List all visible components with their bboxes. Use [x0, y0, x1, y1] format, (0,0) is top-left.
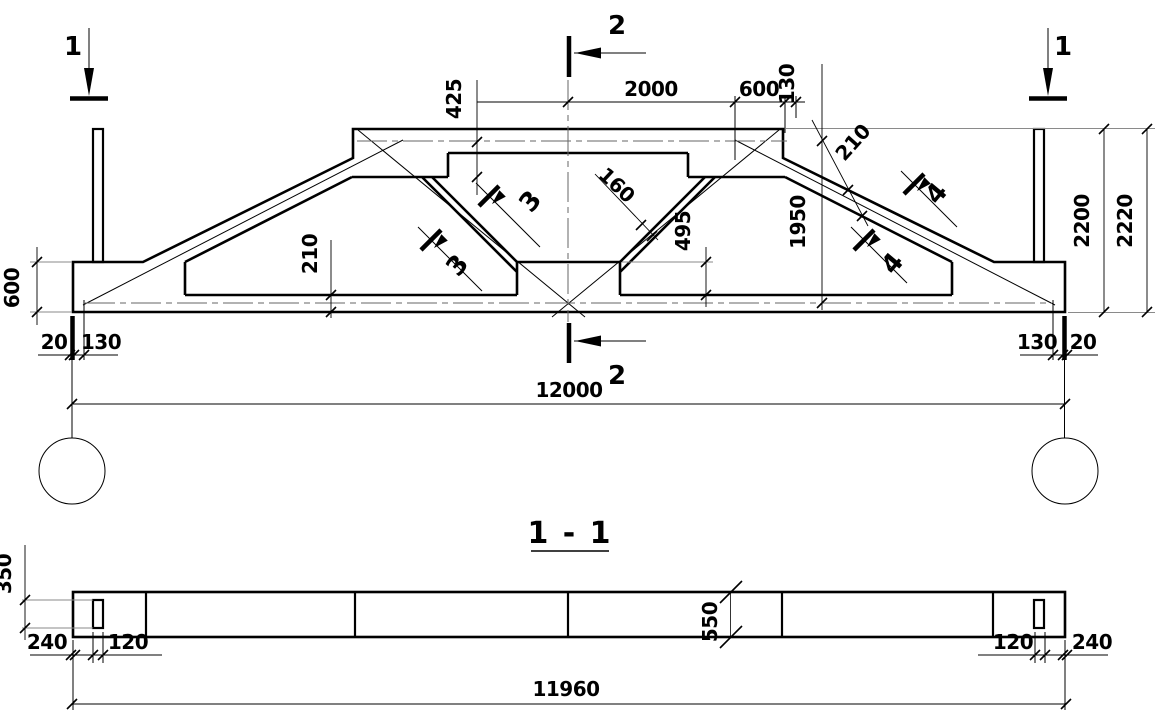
dim-label-550: 550	[698, 602, 722, 642]
dim-label-350: 350	[0, 554, 16, 594]
engineering-drawing: 1 1 2 2 3 3	[0, 0, 1161, 718]
section-view: 1 - 1 350 240 120 120 240 550 11960	[0, 516, 1112, 710]
dim-label-12000: 12000	[535, 378, 602, 402]
dim-label-20-right: 20	[1070, 330, 1097, 354]
dim-label-20-left: 20	[41, 330, 68, 354]
section-cut-3-upper: 3	[476, 183, 548, 247]
section-marker-1-right-label: 1	[1054, 32, 1072, 62]
right-strut-axis	[552, 130, 779, 317]
dim-label-120-right: 120	[993, 630, 1033, 654]
dim-label-425: 425	[442, 79, 466, 119]
section-cut-3-upper-label: 3	[514, 185, 549, 218]
dim-label-11960: 11960	[532, 677, 599, 701]
dim-label-160: 160	[594, 162, 640, 207]
girder-outer-outline	[73, 129, 1065, 312]
dim-label-2200: 2200	[1070, 194, 1094, 248]
section-title: 1 - 1	[527, 516, 612, 551]
section-cut-3-lower: 3	[418, 227, 482, 291]
axis-circle-left	[39, 438, 105, 504]
left-block-extensions	[30, 262, 72, 312]
axis-circle-right	[1032, 438, 1098, 504]
dim-label-210-right: 210	[830, 119, 875, 165]
girder-elevation	[73, 80, 1065, 322]
section-marker-1-left: 1	[64, 28, 108, 99]
section-cut-4-upper: 4	[901, 171, 957, 227]
section-marker-2-top: 2	[569, 11, 646, 77]
dim-label-130-right: 130	[1017, 330, 1057, 354]
slot-extensions	[22, 600, 93, 628]
left-strut-axis	[358, 130, 585, 317]
section-marker-1-right: 1	[1029, 28, 1072, 99]
dim-label-240-left: 240	[27, 630, 67, 654]
dim-label-240-right: 240	[1072, 630, 1112, 654]
dim-label-210-left: 210	[298, 234, 322, 274]
section-marker-1-left-label: 1	[64, 32, 82, 62]
section-marker-2-top-label: 2	[608, 11, 626, 41]
dim-label-130-top: 130	[775, 64, 799, 104]
dim-label-600-top: 600	[739, 77, 779, 101]
left-chord-axis	[83, 140, 403, 305]
right-chord-axis	[735, 140, 1055, 305]
dim-label-495: 495	[671, 211, 695, 251]
dim-label-1950: 1950	[786, 195, 810, 249]
left-slot	[93, 600, 103, 628]
section-marker-2-bottom-label: 2	[608, 361, 626, 391]
dim-label-600-left: 600	[0, 268, 24, 308]
dim-label-2000: 2000	[624, 77, 678, 101]
right-slot	[1034, 600, 1044, 628]
section-cut-4-lower-label: 4	[876, 247, 911, 280]
dim-label-2220: 2220	[1113, 194, 1137, 248]
dim-label-120-left: 120	[108, 630, 148, 654]
beam-joint-lines	[146, 592, 993, 637]
left-dowel-pin	[93, 129, 103, 262]
right-dowel-pin	[1034, 129, 1044, 262]
drawing-canvas: 1 1 2 2 3 3	[0, 0, 1161, 718]
dim-label-130-left: 130	[81, 330, 121, 354]
